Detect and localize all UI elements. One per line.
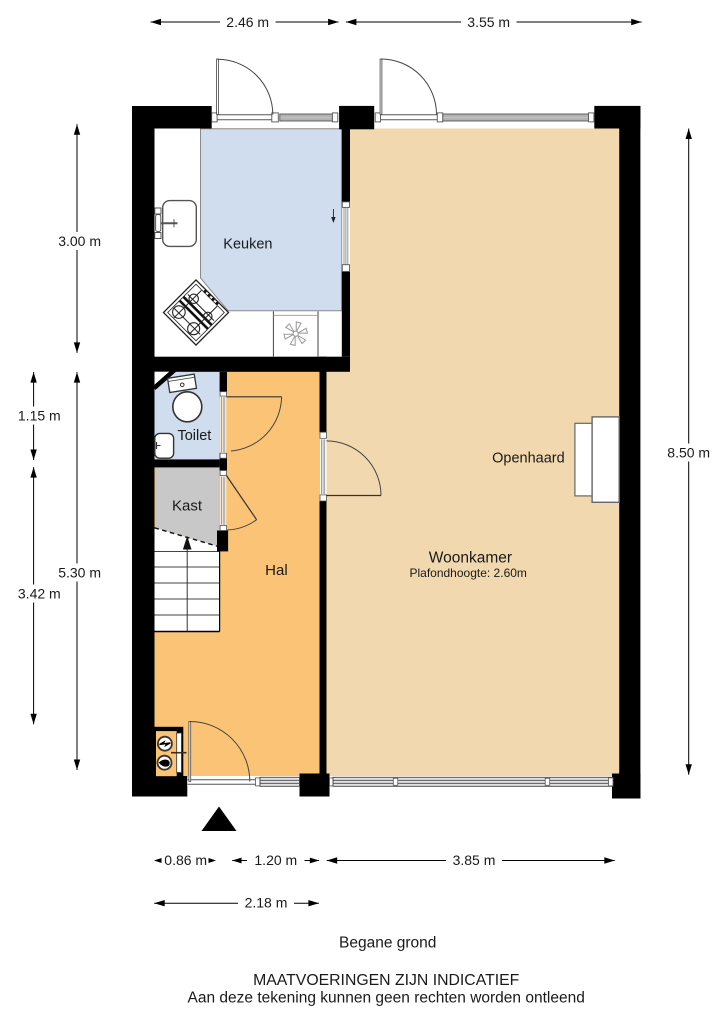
svg-text:Woonkamer: Woonkamer (429, 549, 512, 566)
svg-text:1.20 m: 1.20 m (254, 852, 297, 868)
svg-text:Aan deze tekening kunnen geen: Aan deze tekening kunnen geen rechten wo… (188, 990, 585, 1007)
svg-text:Keuken: Keuken (223, 237, 272, 253)
svg-text:0.86 m: 0.86 m (164, 852, 207, 868)
svg-text:Openhaard: Openhaard (492, 450, 565, 466)
svg-text:Toilet: Toilet (177, 428, 211, 444)
svg-text:3.00 m: 3.00 m (58, 233, 101, 249)
svg-text:2.46 m: 2.46 m (226, 14, 269, 30)
svg-text:2.18 m: 2.18 m (245, 895, 288, 911)
svg-text:MAATVOERINGEN ZIJN INDICATIEF: MAATVOERINGEN ZIJN INDICATIEF (253, 972, 520, 989)
svg-text:Kast: Kast (172, 497, 203, 514)
svg-text:Begane grond: Begane grond (339, 935, 436, 952)
svg-text:3.55 m: 3.55 m (467, 14, 510, 30)
svg-text:8.50 m: 8.50 m (667, 445, 710, 461)
svg-text:Plafondhoogte: 2.60m: Plafondhoogte: 2.60m (409, 566, 526, 580)
svg-text:5.30 m: 5.30 m (58, 565, 101, 581)
svg-text:3.85 m: 3.85 m (453, 852, 496, 868)
svg-text:Hal: Hal (265, 562, 288, 579)
svg-text:3.42 m: 3.42 m (18, 586, 61, 602)
svg-text:1.15 m: 1.15 m (18, 408, 61, 424)
